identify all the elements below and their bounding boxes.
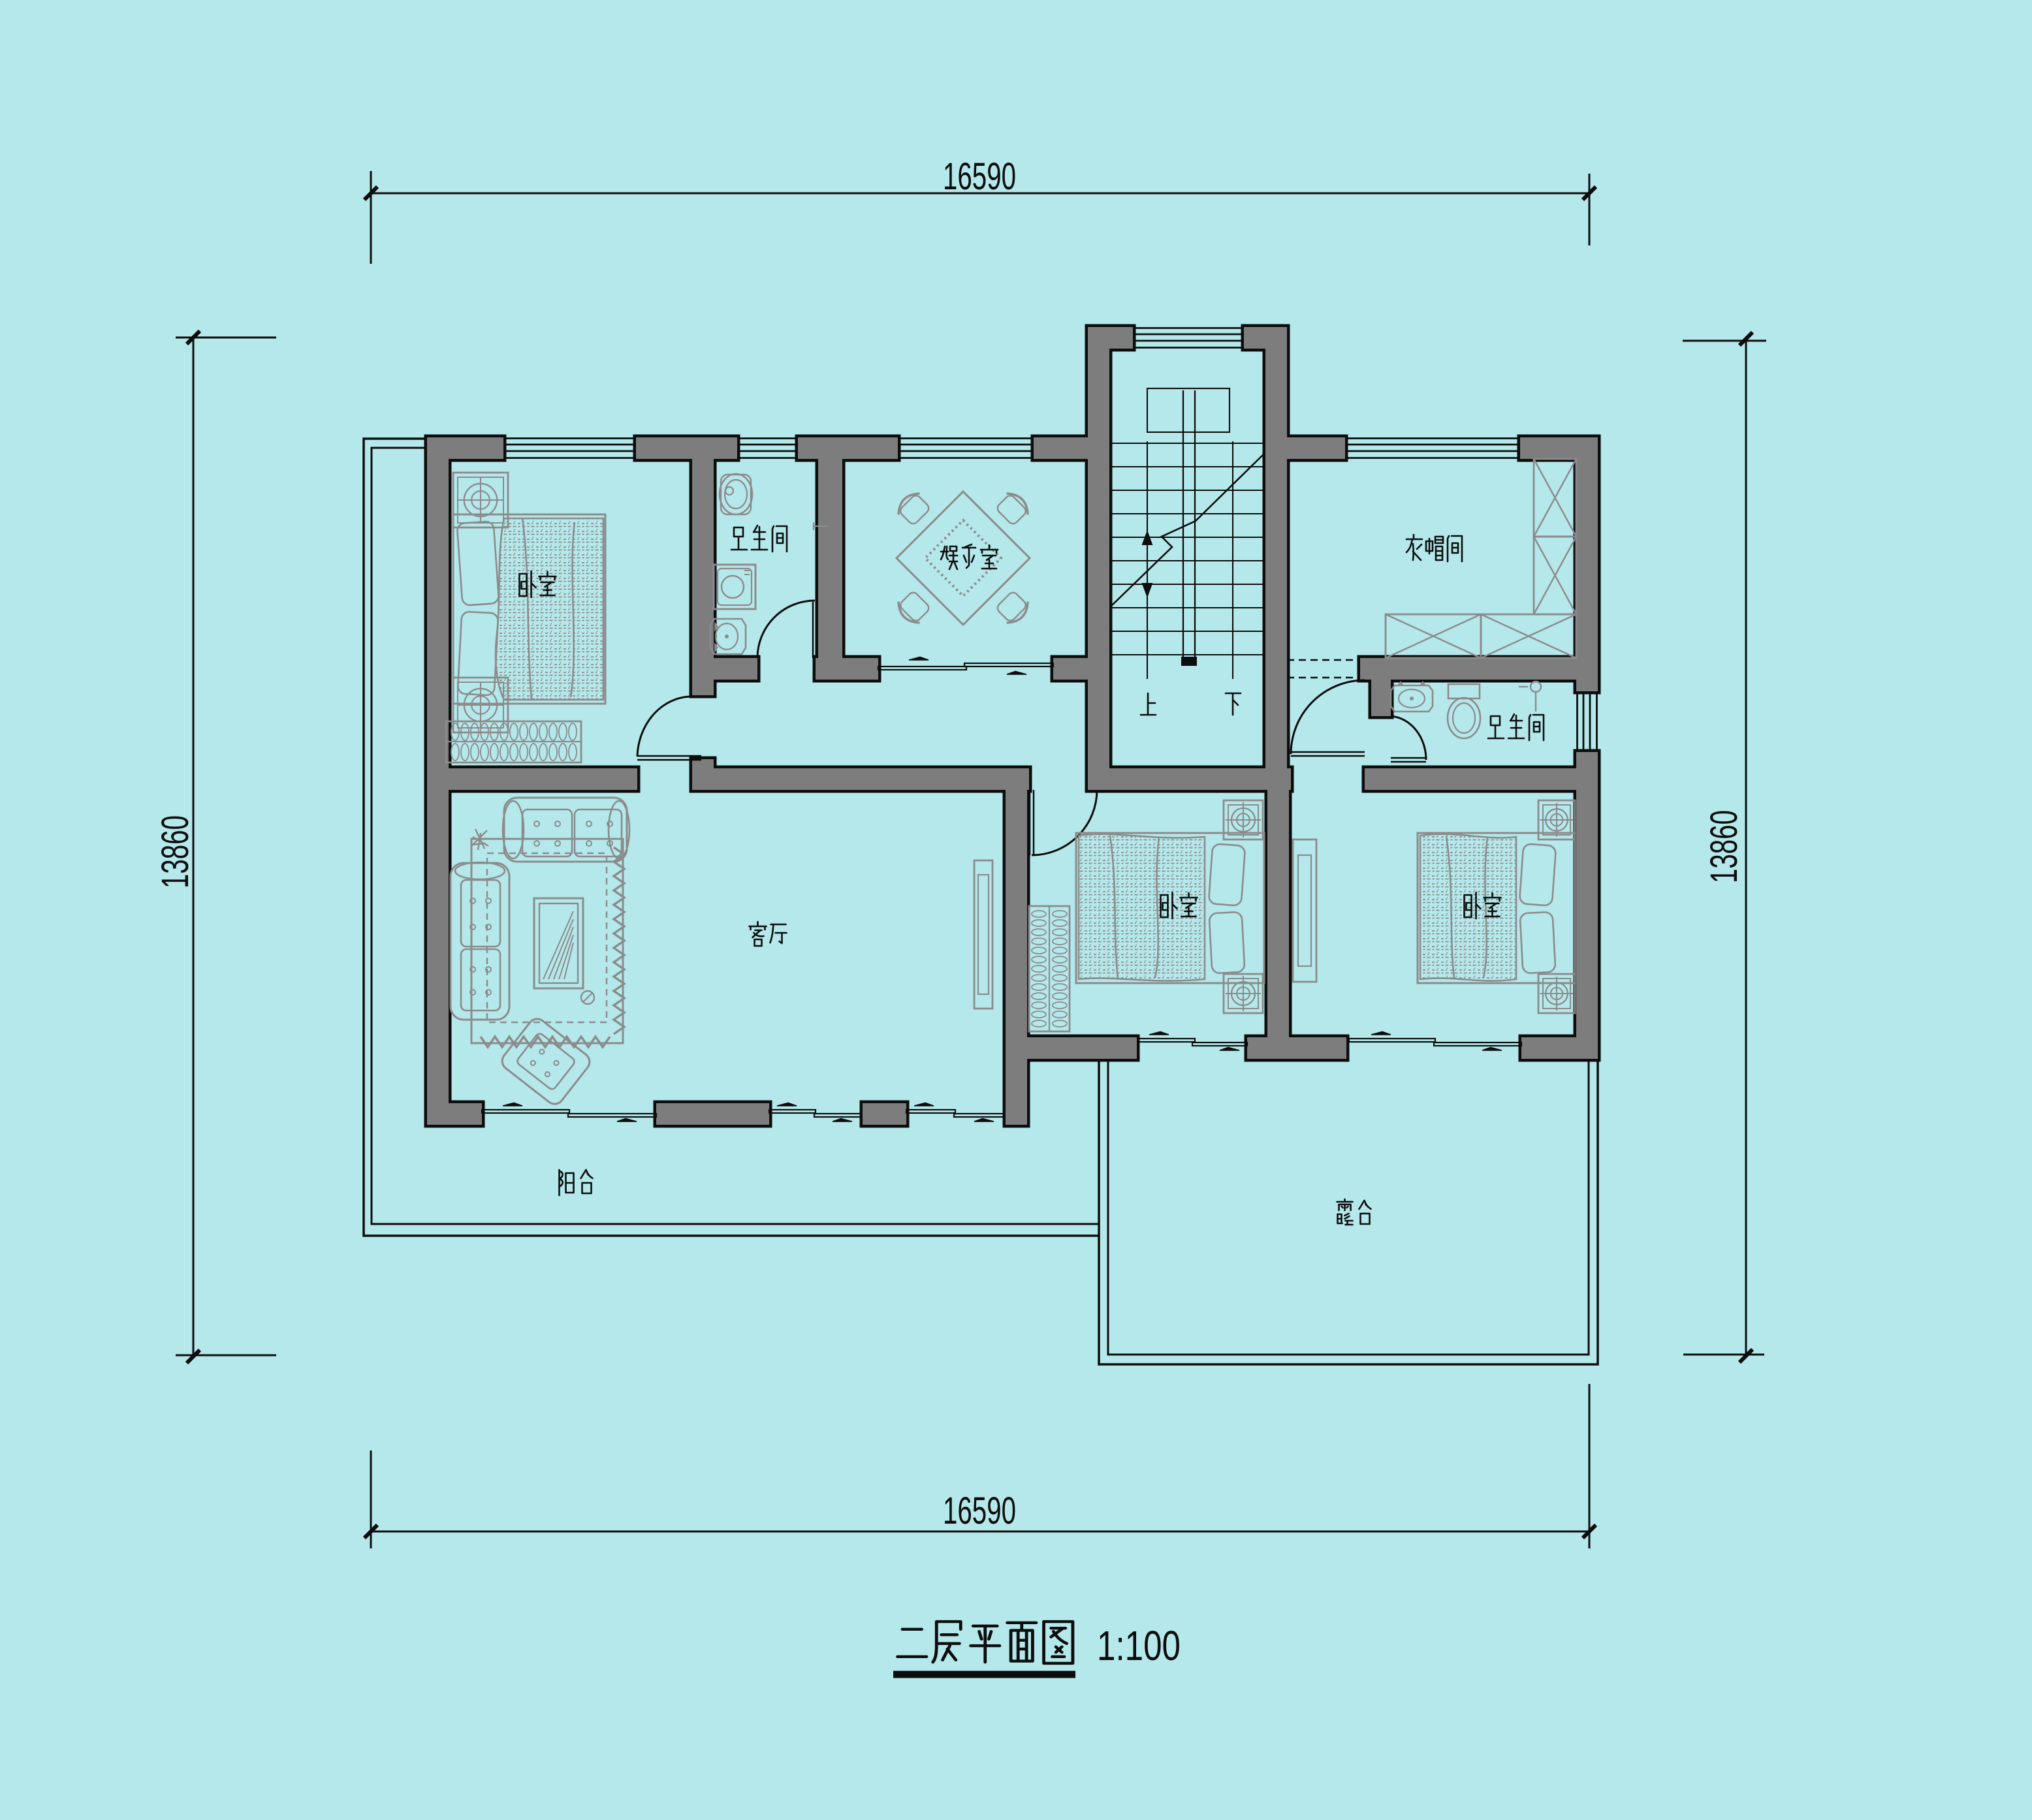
svg-text:13860: 13860 bbox=[1703, 810, 1745, 883]
svg-text:16590: 16590 bbox=[943, 1490, 1016, 1532]
svg-text:1:100: 1:100 bbox=[1097, 1622, 1181, 1669]
svg-text:16590: 16590 bbox=[943, 155, 1016, 198]
svg-text:13860: 13860 bbox=[154, 815, 197, 888]
